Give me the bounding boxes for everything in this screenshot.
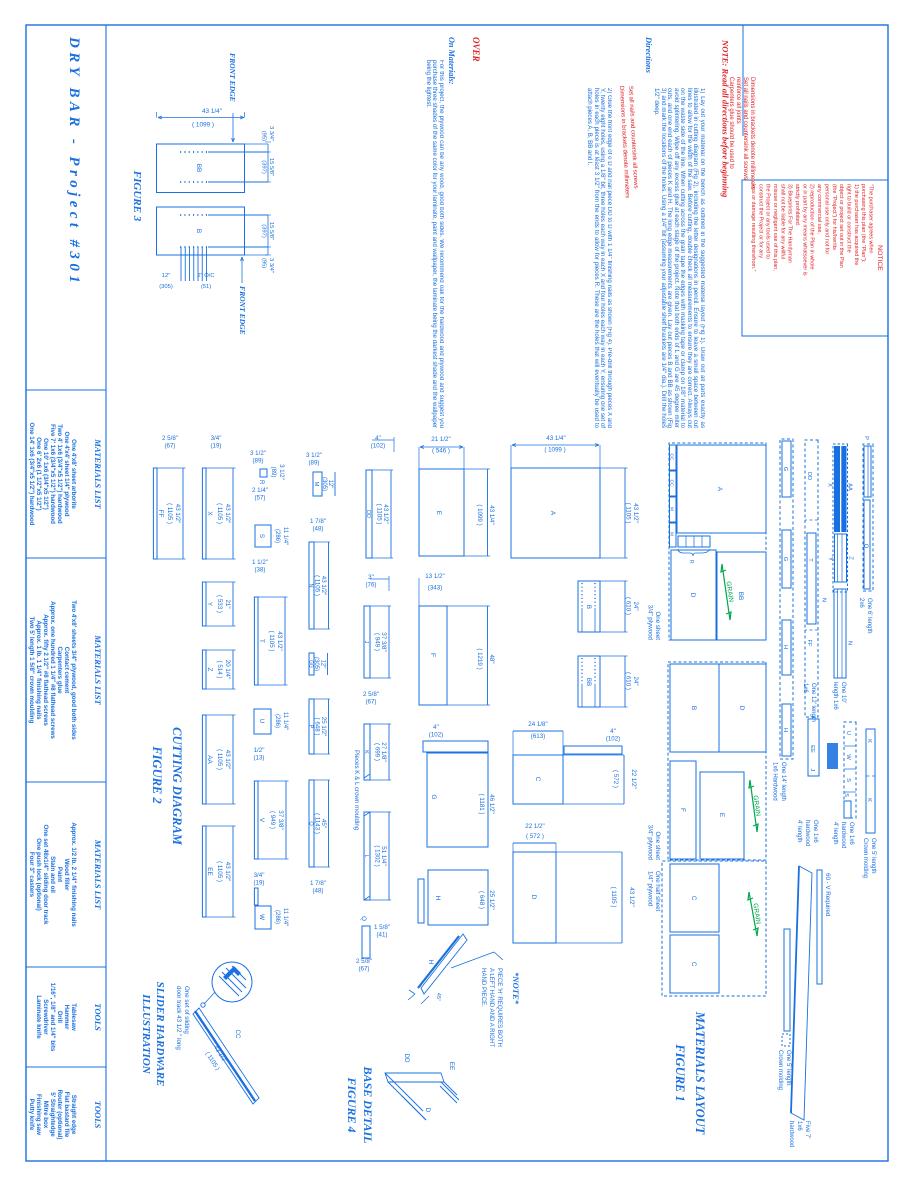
- svg-text:BB: BB: [737, 592, 744, 601]
- svg-text:F: F: [429, 653, 436, 657]
- svg-text:( 1105 ): ( 1105 ): [268, 631, 275, 652]
- svg-text:( 1099 ): ( 1099 ): [192, 122, 214, 129]
- svg-text:3/4": 3/4": [254, 872, 265, 879]
- svg-text:U: U: [845, 731, 851, 735]
- svg-text:21": 21": [224, 599, 231, 608]
- svg-text:Screwdriver: Screwdriver: [42, 999, 49, 1035]
- svg-text:K: K: [866, 798, 872, 802]
- svg-text:2 5/8": 2 5/8": [356, 958, 372, 965]
- svg-text:1/2": 1/2": [254, 747, 265, 754]
- svg-text:One half sheet: One half sheet: [654, 871, 661, 912]
- svg-text:TOOLS: TOOLS: [93, 1101, 103, 1129]
- svg-text:3 1/2": 3 1/2": [306, 452, 322, 459]
- svg-text:4' length: 4' length: [832, 822, 838, 845]
- svg-text:S: S: [845, 778, 851, 782]
- svg-text:*NOTE*: *NOTE*: [511, 972, 521, 1005]
- svg-text:One 6' length: One 6' length: [866, 598, 872, 634]
- svg-text:FIGURE 4: FIGURE 4: [345, 1076, 359, 1132]
- svg-text:FRONT EDGE: FRONT EDGE: [228, 53, 237, 102]
- svg-text:( 1143 ): ( 1143 ): [314, 813, 321, 834]
- svg-text:C: C: [690, 896, 697, 901]
- svg-text:(89): (89): [252, 458, 263, 465]
- svg-text:3) Blueprints For The Handyman: 3) Blueprints For The Handyman: [787, 184, 793, 263]
- svg-text:O: O: [307, 821, 313, 826]
- svg-text:3": 3": [368, 574, 374, 581]
- svg-text:43 1/2": 43 1/2": [224, 750, 231, 769]
- svg-text:( 1105 ): ( 1105 ): [376, 504, 383, 525]
- svg-text:( 1105 ): ( 1105 ): [216, 749, 223, 770]
- svg-text:2 5/8": 2 5/8": [162, 435, 178, 442]
- svg-text:( 1105 ): ( 1105 ): [314, 575, 321, 596]
- svg-text:1 1/2": 1 1/2": [252, 559, 268, 566]
- svg-text:Paint: Paint: [56, 867, 63, 882]
- svg-text:A: A: [716, 487, 723, 492]
- svg-text:R: R: [688, 560, 694, 564]
- svg-text:H: H: [782, 645, 788, 649]
- svg-text:1x6: 1x6: [796, 1121, 802, 1131]
- svg-text:46 1/2": 46 1/2": [488, 794, 495, 813]
- svg-text:Z: Z: [848, 556, 854, 560]
- svg-text:“The purchaser agrees when: “The purchaser agrees when: [868, 184, 874, 254]
- svg-text:T: T: [258, 639, 265, 643]
- svg-text:(67): (67): [164, 443, 175, 450]
- svg-text:D: D: [424, 1108, 431, 1113]
- svg-text:Carpenters glue: Carpenters glue: [56, 646, 63, 694]
- svg-text:(397): (397): [261, 224, 267, 238]
- svg-text:43 1/2": 43 1/2": [628, 887, 635, 906]
- svg-text:FIGURE 2: FIGURE 2: [150, 745, 164, 803]
- svg-text:F: F: [679, 808, 686, 812]
- svg-text:51 1/4": 51 1/4": [380, 846, 387, 865]
- svg-text:( 533 ): ( 533 ): [216, 595, 223, 613]
- svg-text:( 546 ): ( 546 ): [432, 448, 450, 455]
- svg-text:Two 4'x8' sheets 3/4" plywood,: Two 4'x8' sheets 3/4" plywood, good both…: [70, 600, 77, 740]
- svg-text:43 1/4": 43 1/4": [488, 505, 495, 524]
- svg-text:20 1/4": 20 1/4": [224, 660, 231, 679]
- svg-text:43 1/2": 43 1/2": [224, 504, 231, 523]
- svg-text:(613): (613): [531, 733, 545, 740]
- svg-text:C: C: [690, 962, 697, 967]
- svg-text:MATERIALS LIST: MATERIALS LIST: [93, 839, 103, 910]
- svg-text:(57): (57): [254, 495, 265, 502]
- svg-text:43 1/2": 43 1/2": [320, 576, 327, 595]
- svg-text:3/4" plywood: 3/4" plywood: [647, 605, 654, 641]
- svg-text:3/4" plywood: 3/4" plywood: [647, 825, 654, 861]
- svg-text:J: J: [809, 769, 815, 772]
- svg-text:Laminate knife: Laminate knife: [35, 995, 42, 1039]
- svg-text:E: E: [718, 813, 725, 817]
- svg-text:(38): (38): [254, 567, 265, 574]
- svg-text:43 1/2": 43 1/2": [276, 631, 283, 650]
- svg-text:Q: Q: [863, 544, 869, 549]
- svg-text:Set all nails and countersink: Set all nails and countersink all screws: [742, 77, 748, 180]
- svg-text:B: B: [585, 605, 592, 609]
- svg-text:CC: CC: [669, 454, 675, 461]
- svg-text:Finishing saw: Finishing saw: [35, 1094, 42, 1135]
- svg-text:1 5/8": 1 5/8": [374, 924, 390, 931]
- svg-text:Putty knife: Putty knife: [28, 1099, 35, 1131]
- svg-text:3 3/4": 3 3/4": [268, 258, 274, 273]
- svg-text:On Materials:: On Materials:: [447, 37, 456, 85]
- svg-text:(89): (89): [308, 460, 319, 467]
- svg-text:Two 5' length 1 5/8" crown mou: Two 5' length 1 5/8" crown moulding: [28, 617, 35, 724]
- svg-text:W: W: [258, 914, 265, 920]
- svg-text:BB: BB: [585, 678, 592, 686]
- svg-text:S: S: [258, 534, 265, 538]
- svg-text:5' Straightedge: 5' Straightedge: [49, 1092, 56, 1137]
- svg-text:Dimensions in brackets denote: Dimensions in brackets denote millimeter…: [749, 77, 755, 189]
- svg-text:Wood filler: Wood filler: [63, 859, 70, 891]
- svg-text:door track 43 1/2 " long: door track 43 1/2 " long: [175, 986, 182, 1050]
- svg-text:12": 12": [327, 480, 333, 489]
- svg-text:Crown molding: Crown molding: [777, 1050, 783, 1090]
- svg-text:3/4": 3/4": [211, 435, 222, 442]
- svg-text:1/16", 1/8" and 1/4" bits: 1/16", 1/8" and 1/4" bits: [49, 983, 56, 1052]
- svg-text:( 1099 ): ( 1099 ): [476, 504, 483, 525]
- svg-text:43 1/2": 43 1/2": [174, 504, 181, 523]
- svg-text:4": 4": [375, 435, 381, 442]
- svg-text:Approx. 1 lb. 1 1/4" finishing: Approx. 1 lb. 1 1/4" finishing nails: [35, 620, 42, 720]
- svg-text:H: H: [434, 896, 441, 901]
- svg-text:Drill: Drill: [56, 1011, 63, 1023]
- svg-text:V: V: [258, 818, 265, 823]
- svg-text:2" O/C: 2" O/C: [197, 273, 214, 279]
- svg-text:N: N: [307, 583, 313, 587]
- svg-text:(95): (95): [261, 131, 267, 141]
- svg-text:45": 45": [320, 819, 327, 828]
- svg-text:( 949 ): ( 949 ): [269, 811, 276, 829]
- svg-text:37 3/8": 37 3/8": [277, 810, 284, 829]
- svg-text:FF: FF: [157, 510, 164, 518]
- svg-text:One sheet: One sheet: [654, 611, 661, 640]
- svg-text:construct the Project or f: construct the Project or for any: [757, 184, 763, 258]
- svg-text:Y: Y: [206, 602, 213, 607]
- svg-text:1x6 Hardwood: 1x6 Hardwood: [772, 762, 778, 801]
- svg-text:One 10' 1x6 (3/4"x5 1/2"): One 10' 1x6 (3/4"x5 1/2"): [42, 438, 49, 510]
- svg-text:24 1/8": 24 1/8": [528, 721, 547, 728]
- svg-text:24": 24": [632, 676, 639, 685]
- svg-text:(305): (305): [321, 477, 327, 491]
- svg-text:4' length: 4' length: [796, 820, 802, 843]
- svg-text:misuse or negligent use of thi: misuse or negligent use of this plan,: [772, 184, 778, 271]
- svg-text:(41): (41): [376, 932, 387, 939]
- svg-text:One 10': One 10': [840, 682, 846, 703]
- svg-text:Tablesaw: Tablesaw: [70, 1003, 77, 1031]
- svg-text:One set of sliding: One set of sliding: [183, 986, 190, 1034]
- svg-text:43 1/2": 43 1/2": [632, 503, 639, 522]
- svg-text:11 1/4": 11 1/4": [282, 712, 288, 730]
- svg-text:(67): (67): [365, 699, 376, 706]
- svg-text:K: K: [866, 739, 872, 743]
- svg-text:length 1x6: length 1x6: [832, 682, 838, 710]
- svg-text:( 572 ): ( 572 ): [612, 770, 619, 788]
- svg-text:(343): (343): [428, 585, 442, 592]
- svg-text:( 1105 ): ( 1105 ): [216, 503, 223, 524]
- svg-text:(48): (48): [312, 526, 323, 533]
- svg-text:FRONT EDGE: FRONT EDGE: [238, 286, 247, 335]
- svg-text:One 1x6: One 1x6: [848, 822, 854, 845]
- svg-text:One 4'x8' sheet arborite: One 4'x8' sheet arborite: [70, 439, 77, 509]
- svg-text:( 1105 ): ( 1105 ): [166, 503, 173, 524]
- svg-text:( 1105 ): ( 1105 ): [625, 503, 632, 524]
- svg-text:A LEFT HAND AND A RIGHT: A LEFT HAND AND A RIGHT: [488, 968, 495, 1047]
- svg-text:BB: BB: [195, 164, 202, 173]
- svg-text:AA: AA: [847, 483, 853, 491]
- svg-text:(19): (19): [253, 880, 264, 887]
- svg-text:One 5' length: One 5' length: [785, 1050, 791, 1086]
- svg-text:NOTE: Read all directions befo: NOTE: Read all directions before beginni…: [721, 39, 731, 198]
- svg-text:3 3/4": 3 3/4": [268, 126, 274, 141]
- svg-text:Pieces K & L crown moulding: Pieces K & L crown moulding: [353, 750, 360, 831]
- svg-text:(51): (51): [201, 284, 211, 290]
- svg-text:12": 12": [162, 273, 171, 279]
- svg-text:B: B: [195, 229, 202, 233]
- svg-text:Approx. one hundred 1 1/4" #8: Approx. one hundred 1 1/4" #8 flathead s…: [49, 601, 56, 739]
- svg-text:H: H: [427, 960, 434, 964]
- svg-text:GRAIN: GRAIN: [725, 581, 735, 603]
- svg-text:(13): (13): [253, 755, 264, 762]
- svg-text:P: P: [307, 725, 313, 729]
- svg-text:FIGURE 3: FIGURE 3: [131, 170, 143, 222]
- svg-text:(89): (89): [270, 467, 276, 478]
- svg-text:Approx. fifty 2 1/2" #8 flathe: Approx. fifty 2 1/2" #8 flathead screws: [42, 614, 49, 726]
- svg-text:( 1105 ): ( 1105 ): [216, 861, 223, 882]
- svg-text:G: G: [782, 467, 788, 472]
- svg-text:(the “Project”) for his/her/it: (the “Project”) for his/her/its: [831, 184, 837, 250]
- svg-text:48": 48": [488, 654, 495, 663]
- svg-text:Four 3" casters: Four 3" casters: [28, 852, 35, 898]
- svg-text:TOOLS: TOOLS: [93, 1003, 103, 1031]
- svg-text:FF: FF: [806, 639, 812, 647]
- svg-text:(67): (67): [358, 966, 369, 973]
- svg-text:MATERIALS LIST: MATERIALS LIST: [93, 438, 103, 509]
- svg-text:G: G: [430, 794, 437, 799]
- svg-text:D: D: [689, 593, 696, 598]
- svg-text:D: D: [530, 895, 537, 900]
- svg-text:object or project set out in t: object or project set out in the Plan: [838, 184, 844, 268]
- svg-text:Straight edge: Straight edge: [70, 1095, 77, 1135]
- svg-text:Hammer: Hammer: [63, 1005, 70, 1030]
- svg-text:3 1/2": 3 1/2": [278, 464, 284, 479]
- svg-text:J: J: [363, 641, 369, 644]
- svg-text:(286): (286): [274, 529, 280, 543]
- svg-text:R: R: [258, 480, 264, 485]
- svg-text:K: K: [363, 750, 369, 754]
- svg-text:One sheet: One sheet: [654, 831, 661, 860]
- svg-text:DRY BAR - Project #301: DRY BAR - Project #301: [66, 36, 82, 287]
- svg-text:One 1x6: One 1x6: [812, 820, 818, 843]
- svg-text:11 1/4": 11 1/4": [282, 908, 288, 926]
- svg-text:Y: Y: [827, 557, 833, 561]
- svg-text:2 1/4": 2 1/4": [252, 487, 268, 494]
- svg-text:hardwood: hardwood: [788, 1121, 794, 1147]
- svg-text:( 648 ): ( 648 ): [478, 891, 485, 909]
- svg-text:15 5/8": 15 5/8": [268, 222, 274, 240]
- svg-text:27 1/8": 27 1/8": [380, 742, 387, 761]
- svg-text:Directions: Directions: [644, 36, 653, 73]
- svg-text:(95): (95): [261, 258, 267, 268]
- svg-text:P: P: [863, 436, 869, 440]
- svg-text:Contact cement: Contact cement: [63, 647, 70, 693]
- svg-text:A: A: [549, 511, 556, 516]
- svg-text:One 4'x4' sheet 1/4" plywood: One 4'x4' sheet 1/4" plywood: [63, 432, 70, 517]
- svg-text:1/4" plywood: 1/4" plywood: [647, 871, 654, 907]
- svg-text:strictly prohibited.: strictly prohibited.: [794, 184, 800, 227]
- svg-text:EE: EE: [448, 1062, 455, 1070]
- svg-text:(286): (286): [274, 714, 280, 728]
- svg-text:45°: 45°: [435, 993, 441, 1001]
- svg-text:the Project or any tools used: the Project or any tools used to: [765, 184, 771, 259]
- svg-text:H: H: [782, 728, 788, 732]
- svg-text:43 1/2": 43 1/2": [382, 504, 389, 523]
- svg-text:CC: CC: [234, 1030, 241, 1039]
- svg-text:S: S: [843, 793, 849, 797]
- svg-text:M: M: [313, 482, 319, 487]
- svg-text:13 1/2": 13 1/2": [425, 573, 444, 580]
- svg-text:11 1/4": 11 1/4": [282, 527, 288, 545]
- svg-text:43 1/4": 43 1/4": [202, 108, 222, 115]
- svg-text:( 648 ): ( 648 ): [314, 718, 321, 736]
- svg-text:any commercial use,: any commercial use,: [816, 184, 822, 234]
- svg-text:T: T: [807, 558, 813, 562]
- svg-text:4": 4": [433, 724, 439, 731]
- svg-text:( 949 ): ( 949 ): [374, 633, 381, 651]
- svg-text:PIECE 'H' REQUIRES BOTH: PIECE 'H' REQUIRES BOTH: [496, 968, 503, 1047]
- svg-text:25 1/2": 25 1/2": [488, 890, 495, 909]
- svg-text:(102): (102): [371, 443, 385, 450]
- svg-text:( 1181 ): ( 1181 ): [478, 794, 485, 815]
- svg-text:2 5/8": 2 5/8": [363, 691, 379, 698]
- svg-text:( 572 ): ( 572 ): [526, 833, 544, 840]
- svg-text:reinforce all joints: reinforce all joints: [735, 77, 741, 124]
- svg-text:N: N: [821, 598, 827, 602]
- svg-text:( 1099 ): ( 1099 ): [544, 447, 565, 454]
- svg-text:( 514 ): ( 514 ): [216, 661, 223, 679]
- svg-text:HAND PIECE.: HAND PIECE.: [480, 968, 487, 1007]
- svg-text:CC: CC: [669, 480, 675, 487]
- svg-text:MATERIALS LAYOUT: MATERIALS LAYOUT: [693, 1011, 707, 1136]
- svg-text:(305): (305): [159, 284, 173, 290]
- svg-text:U: U: [258, 719, 265, 723]
- svg-text:One set 48x1/4" sliding door t: One set 48x1/4" sliding door track: [42, 825, 49, 925]
- svg-text:One 14' length: One 14' length: [780, 762, 786, 801]
- svg-text:(286): (286): [274, 910, 280, 924]
- svg-text:FIGURE 1: FIGURE 1: [673, 1043, 687, 1101]
- svg-text:hardwood: hardwood: [804, 820, 810, 846]
- svg-text:BASE DETAIL: BASE DETAIL: [361, 1065, 375, 1143]
- svg-text:NOTICE: NOTICE: [876, 245, 883, 271]
- svg-text:B: B: [690, 706, 697, 710]
- svg-text:ILLUSTRATION: ILLUSTRATION: [140, 993, 152, 1075]
- svg-text:15 5/8": 15 5/8": [268, 158, 274, 176]
- svg-text:L: L: [363, 854, 369, 857]
- svg-text:(19): (19): [210, 443, 221, 450]
- svg-text:purchasing this plan (the “Pla: purchasing this plan (the “Plan”):: [860, 184, 866, 263]
- svg-text:C: C: [534, 777, 541, 782]
- svg-text:( 1302 ): ( 1302 ): [374, 845, 381, 866]
- svg-text:E: E: [435, 511, 442, 516]
- svg-text:2) reproduction of the Plan i: 2) reproduction of the Plan in whole: [809, 184, 815, 270]
- svg-text:One 5' length: One 5' length: [870, 838, 876, 874]
- svg-text:1) the purchaser has acquired: 1) the purchaser has acquired the: [853, 184, 859, 265]
- svg-text:D: D: [738, 706, 745, 711]
- svg-text:1 7/8": 1 7/8": [310, 518, 326, 525]
- svg-text:(102): (102): [429, 732, 443, 739]
- svg-text:N: N: [847, 641, 853, 645]
- svg-text:Router (optional): Router (optional): [56, 1090, 63, 1140]
- svg-text:AA: AA: [206, 755, 213, 764]
- svg-text:( 610 ): ( 610 ): [625, 672, 632, 690]
- svg-text:MATERIALS LIST: MATERIALS LIST: [93, 634, 103, 705]
- svg-text:12": 12": [320, 660, 326, 669]
- svg-text:1x6: 1x6: [802, 683, 808, 693]
- svg-text:(397): (397): [261, 160, 267, 174]
- svg-text:1 7/8": 1 7/8": [310, 880, 326, 887]
- svg-text:Q: Q: [360, 916, 367, 921]
- svg-text:(48): (48): [312, 888, 323, 895]
- svg-text:M: M: [669, 507, 675, 511]
- svg-text:X: X: [206, 511, 213, 516]
- svg-text:shall not be liable for any wi: shall not be liable for any willful: [779, 184, 785, 259]
- svg-text:( 1105 ): ( 1105 ): [610, 887, 617, 908]
- svg-text:EE: EE: [809, 745, 815, 753]
- svg-text:3 1/2": 3 1/2": [250, 450, 266, 457]
- svg-text:43 1/4": 43 1/4": [546, 435, 565, 442]
- svg-text:Flat bastard file: Flat bastard file: [63, 1092, 70, 1138]
- svg-text:Z: Z: [206, 668, 213, 672]
- svg-text:Mitre box: Mitre box: [42, 1101, 49, 1129]
- svg-text:2x6: 2x6: [858, 598, 864, 608]
- svg-text:One push lock (optional): One push lock (optional): [35, 838, 42, 911]
- svg-text:22 1/2": 22 1/2": [630, 769, 637, 788]
- svg-text:37 3/8": 37 3/8": [380, 632, 387, 651]
- svg-text:(102): (102): [606, 736, 620, 743]
- svg-text:G: G: [782, 557, 788, 562]
- svg-text:21 1/2": 21 1/2": [431, 436, 450, 443]
- svg-text:Five 7': Five 7': [804, 1121, 810, 1138]
- svg-text:25 1/2": 25 1/2": [320, 717, 327, 736]
- svg-text:Stain and oil: Stain and oil: [49, 856, 56, 893]
- svg-text:Two 4' 1x6 (3/4"x5 1/2") hardw: Two 4' 1x6 (3/4"x5 1/2") hardwood: [56, 424, 63, 524]
- svg-text:M: M: [669, 532, 675, 536]
- svg-text:SLIDER HARDWARE: SLIDER HARDWARE: [154, 982, 166, 1087]
- svg-text:Approx. 1/2 lb. 2 1/4" finishi: Approx. 1/2 lb. 2 1/4" finishing nails: [70, 822, 77, 927]
- svg-text:DD: DD: [403, 1054, 410, 1063]
- svg-text:Crown molding: Crown molding: [862, 838, 868, 878]
- svg-text:loss or damage resulting there: loss or damage resulting therefrom.”: [750, 184, 756, 272]
- svg-text:43 1/2": 43 1/2": [224, 862, 231, 881]
- svg-text:Five 7' 1x6 (3/4"x5 1/2") hard: Five 7' 1x6 (3/4"x5 1/2") hardwood: [49, 424, 56, 524]
- svg-text:24": 24": [632, 601, 639, 610]
- svg-text:GRAIN: GRAIN: [752, 795, 762, 817]
- svg-text:60 - V Required: 60 - V Required: [824, 873, 831, 917]
- svg-text:CUTTING DIAGRAM: CUTTING DIAGRAM: [170, 727, 184, 846]
- svg-text:( 610 ): ( 610 ): [625, 597, 632, 615]
- svg-text:hardwood: hardwood: [840, 822, 846, 848]
- svg-text:DD: DD: [806, 472, 812, 480]
- svg-text:(305): (305): [313, 657, 319, 671]
- svg-text:or in part by any means whatso: or in part by any means whatsoever is: [801, 184, 807, 276]
- svg-text:One 14' 1x6 (3/4"x5 1/2") hard: One 14' 1x6 (3/4"x5 1/2") hardwood: [28, 423, 35, 526]
- svg-text:(76): (76): [365, 582, 376, 589]
- svg-text:One 12' length: One 12' length: [810, 683, 816, 722]
- svg-text:DD: DD: [365, 510, 371, 518]
- svg-text:right to build or construct th: right to build or construct the: [845, 184, 851, 253]
- svg-text:( 699 ): ( 699 ): [374, 743, 381, 761]
- svg-text:One 6' 2x6 (1 1/2"x5 1/2"): One 6' 2x6 (1 1/2"x5 1/2"): [35, 437, 42, 510]
- svg-text:OVER: OVER: [471, 37, 481, 62]
- svg-text:4": 4": [610, 728, 616, 735]
